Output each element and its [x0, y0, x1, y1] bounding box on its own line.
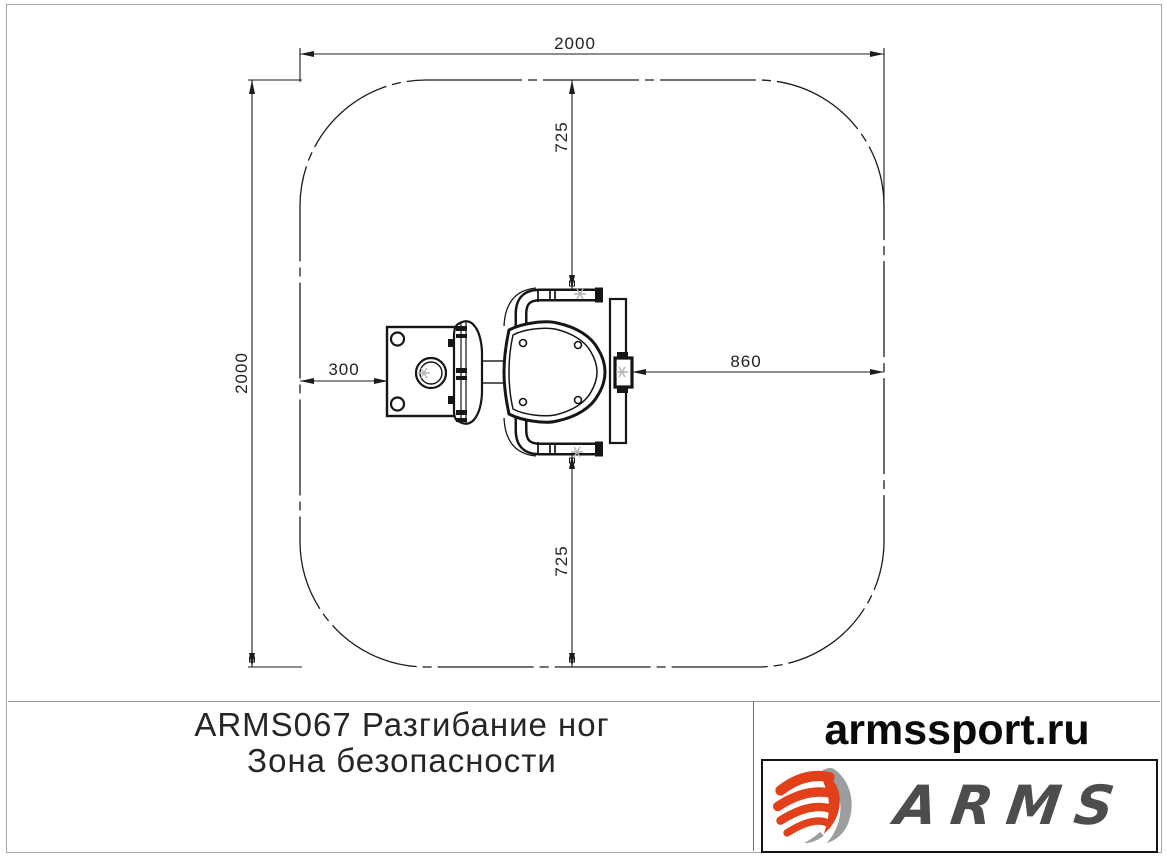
- technical-drawing: 2000 2000 725 300 860 725: [0, 0, 1167, 701]
- seat: [504, 322, 605, 422]
- drawing-title-line1: ARMS067 Разгибание ног: [28, 707, 776, 743]
- arms-logo-emblem-icon: [769, 766, 873, 846]
- arms-logo-text: ARMS: [867, 763, 1162, 849]
- page: 2000 2000 725 300 860 725 ARMS067 Разгиб…: [0, 0, 1167, 862]
- dim-bottom-offset-label: 725: [552, 545, 571, 576]
- dim-top-offset-label: 725: [552, 121, 571, 152]
- dim-left-height-label: 2000: [232, 352, 251, 394]
- arms-logo-box: ARMS: [761, 759, 1158, 853]
- dim-top-width-label: 2000: [554, 34, 596, 53]
- drawing-title: ARMS067 Разгибание ног Зона безопасности: [28, 707, 776, 779]
- drawing-title-line2: Зона безопасности: [28, 743, 776, 779]
- dim-left-offset-label: 300: [328, 360, 359, 379]
- website-url: armssport.ru: [754, 701, 1160, 759]
- dim-right-offset-label: 860: [730, 352, 761, 371]
- machine-left-assembly: [387, 321, 510, 424]
